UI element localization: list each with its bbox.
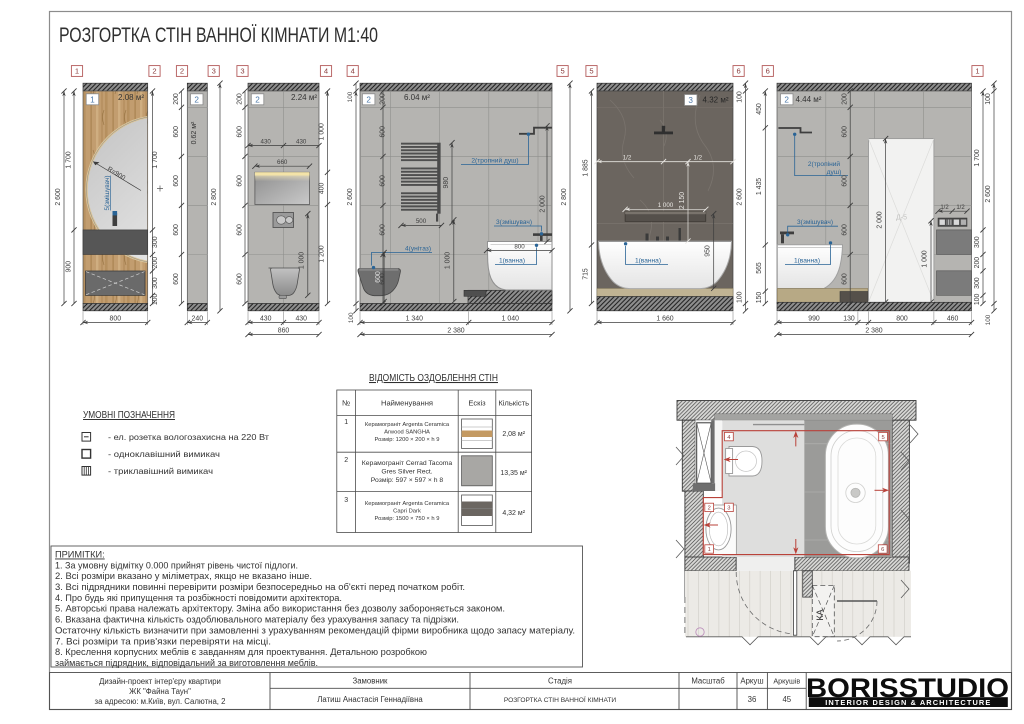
- svg-text:1: 1: [75, 67, 79, 76]
- svg-text:1 000: 1 000: [319, 123, 326, 140]
- svg-text:Розмір: 1200 × 200 × h 9: Розмір: 1200 × 200 × h 9: [375, 437, 440, 443]
- svg-text:600: 600: [236, 224, 243, 236]
- svg-text:1 700: 1 700: [65, 151, 72, 168]
- svg-text:ПРИМІТКИ:: ПРИМІТКИ:: [55, 550, 105, 560]
- svg-text:600: 600: [841, 126, 848, 138]
- svg-text:3: 3: [727, 506, 730, 512]
- svg-text:0.62 м²: 0.62 м²: [191, 121, 198, 144]
- svg-text:Розмір: 1500 × 750 × h 9: Розмір: 1500 × 750 × h 9: [375, 516, 440, 522]
- svg-text:565: 565: [756, 262, 763, 274]
- svg-text:Capri Dark: Capri Dark: [393, 509, 421, 515]
- svg-text:200: 200: [841, 93, 848, 105]
- svg-text:4(унітаз): 4(унітаз): [405, 244, 431, 252]
- svg-text:600: 600: [236, 126, 243, 138]
- svg-text:950: 950: [705, 245, 712, 257]
- svg-text:ЖК "Файна Таун": ЖК "Файна Таун": [129, 687, 191, 696]
- svg-text:5. Авторські права належать ар: 5. Авторські права належать архітектору.…: [55, 604, 505, 614]
- svg-text:600: 600: [375, 271, 382, 283]
- svg-text:300: 300: [974, 236, 981, 248]
- svg-text:4. Про будь які припущення та: 4. Про будь які припущення та розбіжност…: [55, 593, 342, 603]
- svg-text:715: 715: [582, 268, 589, 280]
- svg-text:займається підрядник, відповід: займається підрядник, відповідальний за …: [55, 658, 318, 668]
- svg-text:800: 800: [896, 315, 908, 322]
- svg-text:INTERIOR DESIGN & ARCHITECTURE: INTERIOR DESIGN & ARCHITECTURE: [825, 698, 991, 707]
- svg-text:130: 130: [843, 315, 855, 322]
- svg-text:300: 300: [152, 277, 159, 289]
- svg-text:Arwood SANGHA: Arwood SANGHA: [384, 430, 430, 436]
- svg-text:200: 200: [152, 257, 159, 269]
- svg-text:№: №: [342, 399, 350, 408]
- svg-text:1 700: 1 700: [152, 151, 159, 168]
- svg-text:800: 800: [110, 315, 122, 322]
- svg-text:за адресою: м.Київ, вул. Салют: за адресою: м.Київ, вул. Салютна, 2: [95, 697, 226, 706]
- svg-text:РОЗГОРТКА СТІН ВАННОЇ КІМНАТИ: РОЗГОРТКА СТІН ВАННОЇ КІМНАТИ М1:40: [59, 23, 378, 47]
- svg-text:1 000: 1 000: [445, 252, 452, 269]
- svg-text:Кількість: Кількість: [498, 399, 529, 408]
- svg-text:430: 430: [261, 138, 272, 145]
- svg-text:100: 100: [985, 93, 992, 105]
- svg-text:600: 600: [173, 273, 180, 285]
- svg-text:8. Креслення корпусних меблів: 8. Креслення корпусних меблів є завдання…: [55, 647, 427, 657]
- svg-text:3(змішувач): 3(змішувач): [797, 218, 833, 226]
- svg-text:6.04 м²: 6.04 м²: [404, 93, 430, 102]
- svg-text:4.44 м²: 4.44 м²: [796, 95, 822, 104]
- svg-text:РОЗГОРТКА СТІН ВАННОЇ КІМНАТИ: РОЗГОРТКА СТІН ВАННОЇ КІМНАТИ: [504, 696, 617, 704]
- svg-text:1 040: 1 040: [502, 315, 519, 322]
- svg-text:2 600: 2 600: [55, 188, 62, 205]
- svg-text:Дизайн-проект інтер'єру кварти: Дизайн-проект інтер'єру квартири: [99, 677, 221, 686]
- svg-text:2 600: 2 600: [347, 188, 354, 205]
- svg-text:200: 200: [173, 93, 180, 105]
- svg-text:4: 4: [324, 67, 328, 76]
- svg-text:2 800: 2 800: [211, 188, 218, 205]
- svg-text:450: 450: [756, 103, 763, 115]
- svg-text:2,08 м²: 2,08 м²: [502, 431, 525, 438]
- svg-text:6: 6: [736, 67, 740, 76]
- svg-text:1/2: 1/2: [940, 205, 949, 211]
- svg-text:430: 430: [296, 138, 307, 145]
- svg-text:Gres Silver Rect.: Gres Silver Rect.: [381, 469, 432, 476]
- svg-text:1: 1: [344, 419, 348, 426]
- svg-text:6: 6: [881, 547, 884, 553]
- svg-text:2: 2: [255, 95, 260, 104]
- svg-text:Латиш Анастасія Геннадіївна: Латиш Анастасія Геннадіївна: [317, 695, 423, 704]
- svg-text:900: 900: [65, 261, 72, 273]
- svg-text:3: 3: [688, 96, 693, 105]
- svg-text:Замовник: Замовник: [353, 677, 389, 686]
- svg-text:660: 660: [277, 159, 288, 166]
- svg-text:3: 3: [212, 67, 216, 76]
- svg-text:200: 200: [974, 257, 981, 269]
- svg-text:2 600: 2 600: [736, 188, 743, 205]
- svg-text:13,35 м²: 13,35 м²: [500, 470, 527, 477]
- svg-text:1: 1: [90, 95, 95, 104]
- svg-text:400: 400: [319, 182, 326, 194]
- svg-text:4: 4: [351, 67, 355, 76]
- svg-text:1 435: 1 435: [756, 178, 763, 195]
- svg-text:- ел. розетка вологозахисна на: - ел. розетка вологозахисна на 220 Вт: [108, 432, 269, 442]
- svg-text:860: 860: [278, 327, 290, 334]
- svg-text:1 660: 1 660: [656, 315, 673, 322]
- svg-text:600: 600: [841, 175, 848, 187]
- svg-text:100: 100: [974, 293, 981, 305]
- svg-text:500: 500: [416, 218, 427, 225]
- svg-text:Найменування: Найменування: [381, 399, 433, 408]
- svg-text:- триклавішний вимикач: - триклавішний вимикач: [108, 466, 213, 476]
- svg-text:2.08 м²: 2.08 м²: [118, 93, 144, 102]
- svg-text:600: 600: [380, 126, 387, 138]
- svg-text:2 000: 2 000: [877, 211, 884, 228]
- svg-text:1(ванна): 1(ванна): [499, 257, 525, 264]
- svg-text:1(ванна): 1(ванна): [794, 257, 820, 264]
- svg-text:1/2: 1/2: [956, 205, 965, 211]
- svg-text:980: 980: [443, 177, 450, 189]
- svg-text:1: 1: [708, 547, 711, 553]
- svg-text:600: 600: [173, 175, 180, 187]
- svg-text:1. За умовну відмітку 0.000 пр: 1. За умовну відмітку 0.000 прийнят ріве…: [55, 560, 298, 570]
- svg-text:1/2: 1/2: [693, 154, 702, 161]
- svg-text:2: 2: [194, 95, 199, 104]
- svg-text:100: 100: [347, 91, 354, 102]
- svg-text:600: 600: [380, 224, 387, 236]
- svg-text:4,32 м²: 4,32 м²: [502, 510, 525, 517]
- svg-text:600: 600: [236, 273, 243, 285]
- svg-text:2.24 м²: 2.24 м²: [291, 93, 317, 102]
- svg-text:5: 5: [589, 67, 593, 76]
- svg-text:4.32 м²: 4.32 м²: [703, 96, 729, 105]
- svg-text:3. Всі підрядники повинні пере: 3. Всі підрядники повинні перевірити роз…: [55, 582, 465, 592]
- svg-text:Керамограніт Argenta Ceramica: Керамограніт Argenta Ceramica: [365, 422, 450, 428]
- svg-text:1 340: 1 340: [406, 315, 423, 322]
- svg-text:Ескіз: Ескіз: [468, 399, 486, 408]
- svg-text:300: 300: [974, 277, 981, 289]
- svg-text:5(змішувач): 5(змішувач): [103, 176, 111, 211]
- svg-text:душ): душ): [827, 169, 842, 176]
- svg-text:Остаточну кількість визначити: Остаточну кількість визначити при замовл…: [55, 625, 575, 635]
- svg-text:800: 800: [514, 243, 525, 250]
- svg-text:3(змішувач): 3(змішувач): [496, 218, 532, 226]
- svg-text:1 000: 1 000: [922, 250, 929, 267]
- svg-text:100: 100: [736, 291, 743, 303]
- svg-text:Керамограніт Cerrad Tacoma: Керамограніт Cerrad Tacoma: [362, 459, 453, 467]
- svg-text:Аркушів: Аркушів: [773, 677, 800, 686]
- svg-text:100: 100: [152, 293, 159, 305]
- svg-text:100: 100: [736, 91, 743, 103]
- svg-text:1 000: 1 000: [658, 202, 674, 209]
- svg-text:- одноклавішний вимикач: - одноклавішний вимикач: [108, 449, 220, 459]
- svg-text:2(тропний душ): 2(тропний душ): [471, 157, 518, 165]
- svg-text:2 600: 2 600: [985, 185, 992, 202]
- svg-text:2 000: 2 000: [539, 195, 546, 212]
- svg-text:200: 200: [236, 93, 243, 105]
- svg-text:36: 36: [748, 695, 757, 704]
- svg-text:1: 1: [975, 67, 979, 76]
- svg-text:600: 600: [173, 224, 180, 236]
- svg-text:2: 2: [180, 67, 184, 76]
- svg-text:6. Вказана фактична кількість: 6. Вказана фактична кількість оздоблювал…: [55, 615, 459, 625]
- svg-text:600: 600: [841, 224, 848, 236]
- svg-text:1 885: 1 885: [582, 159, 589, 176]
- svg-text:Масштаб: Масштаб: [691, 677, 725, 686]
- svg-text:1 000: 1 000: [299, 252, 306, 269]
- svg-text:430: 430: [260, 315, 272, 322]
- svg-text:300: 300: [152, 236, 159, 248]
- svg-text:Аркуш: Аркуш: [740, 677, 763, 686]
- svg-text:УМОВНІ ПОЗНАЧЕННЯ: УМОВНІ ПОЗНАЧЕННЯ: [83, 410, 175, 421]
- svg-text:100: 100: [985, 314, 992, 325]
- svg-text:2: 2: [784, 95, 789, 104]
- svg-text:КА: КА: [815, 609, 825, 620]
- svg-text:460: 460: [947, 315, 959, 322]
- svg-text:3: 3: [344, 497, 348, 504]
- svg-text:600: 600: [236, 175, 243, 187]
- svg-text:2: 2: [152, 67, 156, 76]
- svg-text:5: 5: [560, 67, 564, 76]
- svg-text:150: 150: [756, 292, 763, 304]
- svg-text:Керамограніт Argenta Ceramica: Керамограніт Argenta Ceramica: [365, 501, 450, 507]
- svg-text:990: 990: [808, 315, 820, 322]
- svg-text:430: 430: [295, 315, 307, 322]
- svg-text:7. Всі розміри та прив'язки пе: 7. Всі розміри та прив'язки перевіряти н…: [55, 636, 271, 646]
- svg-text:Д-5: Д-5: [896, 215, 907, 222]
- svg-text:200: 200: [380, 93, 387, 105]
- svg-text:2 800: 2 800: [561, 188, 568, 205]
- svg-text:1(ванна): 1(ванна): [635, 257, 661, 264]
- svg-text:ВІДОМІСТЬ ОЗДОБЛЕННЯ СТІН: ВІДОМІСТЬ ОЗДОБЛЕННЯ СТІН: [369, 372, 498, 384]
- svg-text:240: 240: [192, 315, 204, 322]
- svg-text:600: 600: [380, 175, 387, 187]
- svg-text:5: 5: [881, 435, 884, 441]
- svg-text:600: 600: [841, 273, 848, 285]
- svg-text:2: 2: [344, 457, 348, 464]
- svg-text:3: 3: [240, 67, 244, 76]
- svg-text:2 380: 2 380: [447, 327, 464, 334]
- svg-text:600: 600: [173, 126, 180, 138]
- svg-text:2 380: 2 380: [865, 327, 882, 334]
- svg-text:2. Всі розміри вказано у мілім: 2. Всі розміри вказано у міліметрах, якщ…: [55, 571, 312, 581]
- svg-text:Стадія: Стадія: [548, 677, 572, 686]
- svg-text:6: 6: [766, 67, 770, 76]
- svg-text:Розмір: 597 × 597 × h 8: Розмір: 597 × 597 × h 8: [371, 476, 444, 484]
- svg-text:100: 100: [348, 312, 355, 323]
- svg-text:2(тропіний: 2(тропіний: [808, 160, 841, 168]
- svg-text:1 700: 1 700: [974, 149, 981, 166]
- svg-text:1 200: 1 200: [319, 245, 326, 262]
- svg-text:2: 2: [366, 95, 371, 104]
- svg-text:2 150: 2 150: [679, 192, 686, 209]
- svg-text:45: 45: [782, 695, 791, 704]
- svg-text:1/2: 1/2: [623, 154, 632, 161]
- svg-text:2: 2: [708, 506, 711, 512]
